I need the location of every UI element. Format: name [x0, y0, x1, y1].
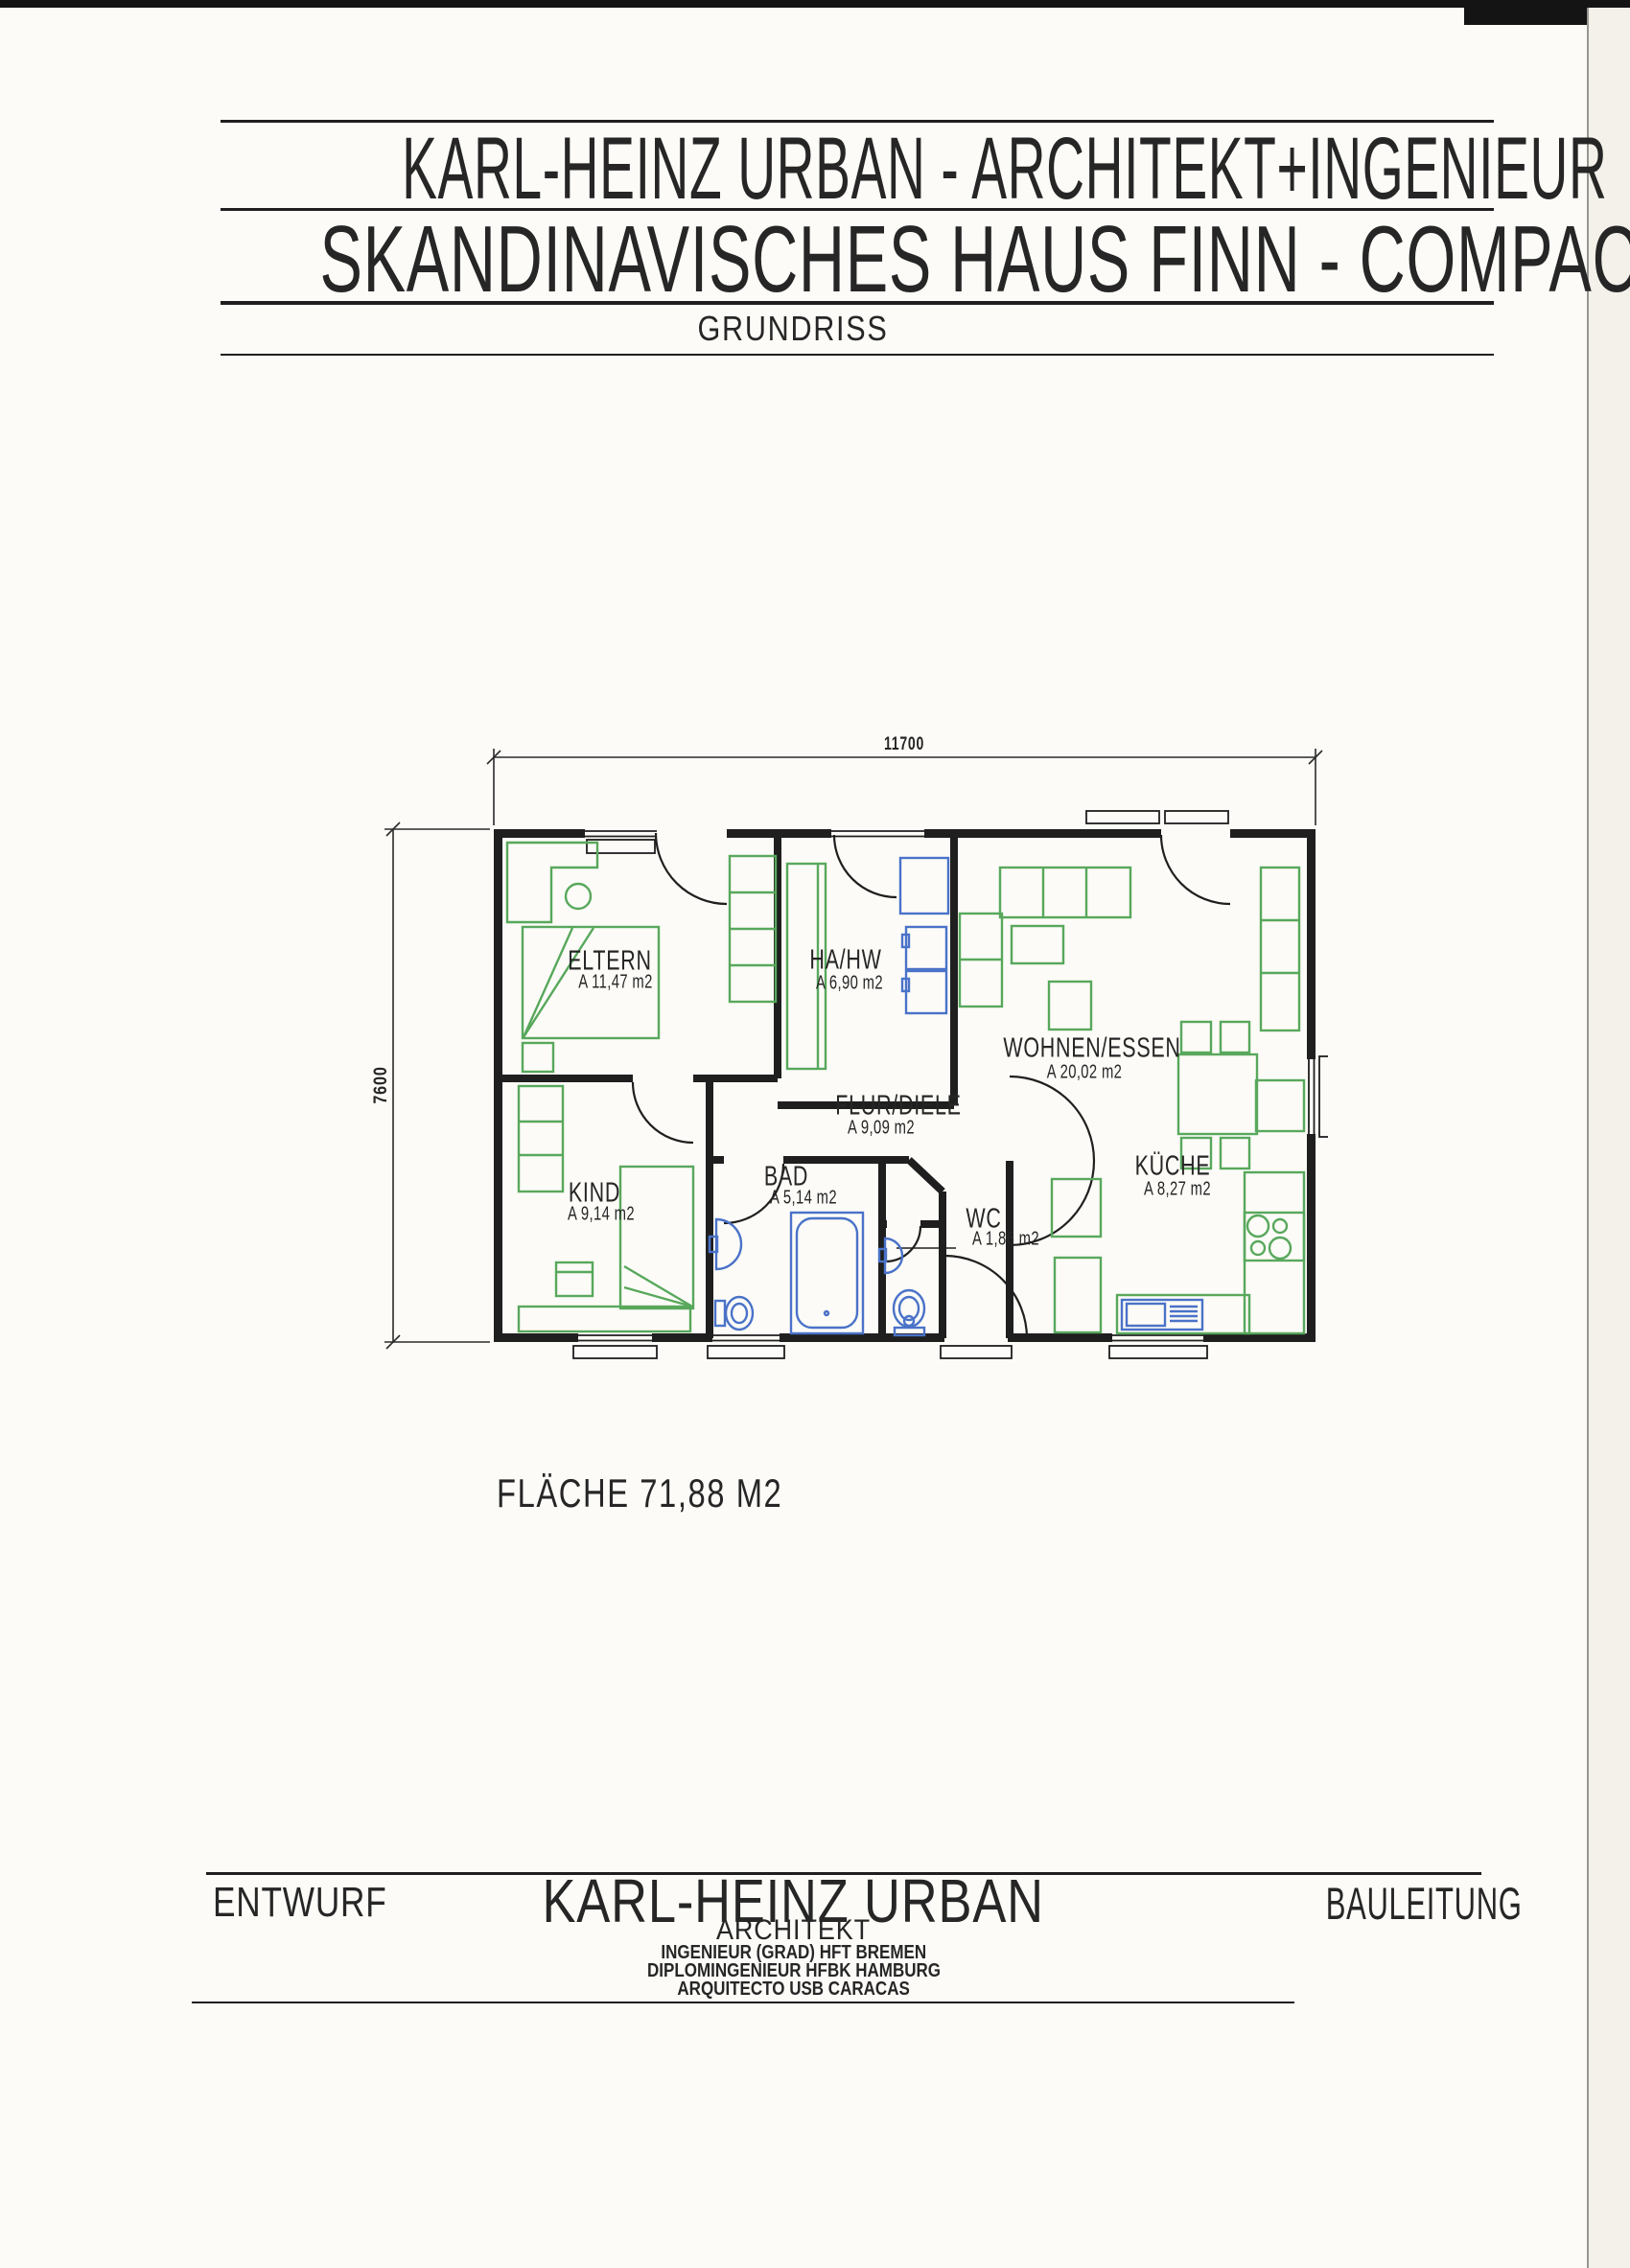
footer-rule-bottom	[192, 2002, 1294, 2003]
footer-right: BAULEITUNG	[1275, 1881, 1491, 1927]
room-area-hahw: A 6,90 m2	[816, 973, 883, 995]
door-swings	[633, 833, 1230, 1338]
room-area-kueche: A 8,27 m2	[1144, 1179, 1211, 1201]
room-area-bad: A 5,14 m2	[770, 1188, 837, 1210]
title-rule-4	[221, 354, 1494, 356]
room-area-wc: A 1,86 m2	[972, 1229, 1039, 1251]
room-area-wohnen: A 20,02 m2	[1047, 1062, 1123, 1084]
project-title: SKANDINAVISCHES HAUS FINN - COMPACT	[0, 213, 1587, 305]
sheet-title: KARL-HEINZ URBAN - ARCHITEKT+INGENIEUR	[0, 125, 1587, 213]
dimension-width-label: 11700	[884, 734, 924, 755]
drawing-type: GRUNDRISS	[0, 309, 1587, 349]
room-area-flur: A 9,09 m2	[848, 1118, 915, 1140]
furniture	[507, 843, 1304, 1333]
room-area-eltern: A 11,47 m2	[578, 972, 652, 994]
architect-role-text: ARCHITEKT	[716, 1917, 871, 1944]
paper-edge-line	[1587, 8, 1589, 2268]
project-title-text: SKANDINAVISCHES HAUS FINN - COMPACT	[319, 213, 1630, 305]
bauleitung-text: BAULEITUNG	[1326, 1881, 1523, 1927]
title-rule-3	[221, 301, 1494, 305]
total-area-text: FLÄCHE 71,88 M2	[497, 1472, 782, 1515]
dimension-height-label: 7600	[371, 1066, 392, 1103]
drawing-type-text: GRUNDRISS	[698, 309, 889, 349]
room-area-kind: A 9,14 m2	[568, 1204, 635, 1226]
footer-credentials: INGENIEUR (GRAD) HFT BREMEN DIPLOMINGENI…	[0, 1944, 1587, 1999]
floor-plan-drawing	[379, 724, 1328, 1366]
paper-right-margin	[1589, 8, 1630, 2268]
architect-title-text: KARL-HEINZ URBAN - ARCHITEKT+INGENIEUR	[402, 125, 1607, 213]
drawing-sheet: KARL-HEINZ URBAN - ARCHITEKT+INGENIEUR S…	[0, 0, 1630, 2268]
total-area: FLÄCHE 71,88 M2	[497, 1472, 864, 1515]
room-name-wohnen: WOHNEN/ESSEN	[1003, 1033, 1180, 1065]
credential-3: ARQUITECTO USB CARACAS	[677, 1980, 909, 1999]
outer-walls	[494, 829, 1316, 1342]
scan-edge-top	[0, 0, 1630, 8]
